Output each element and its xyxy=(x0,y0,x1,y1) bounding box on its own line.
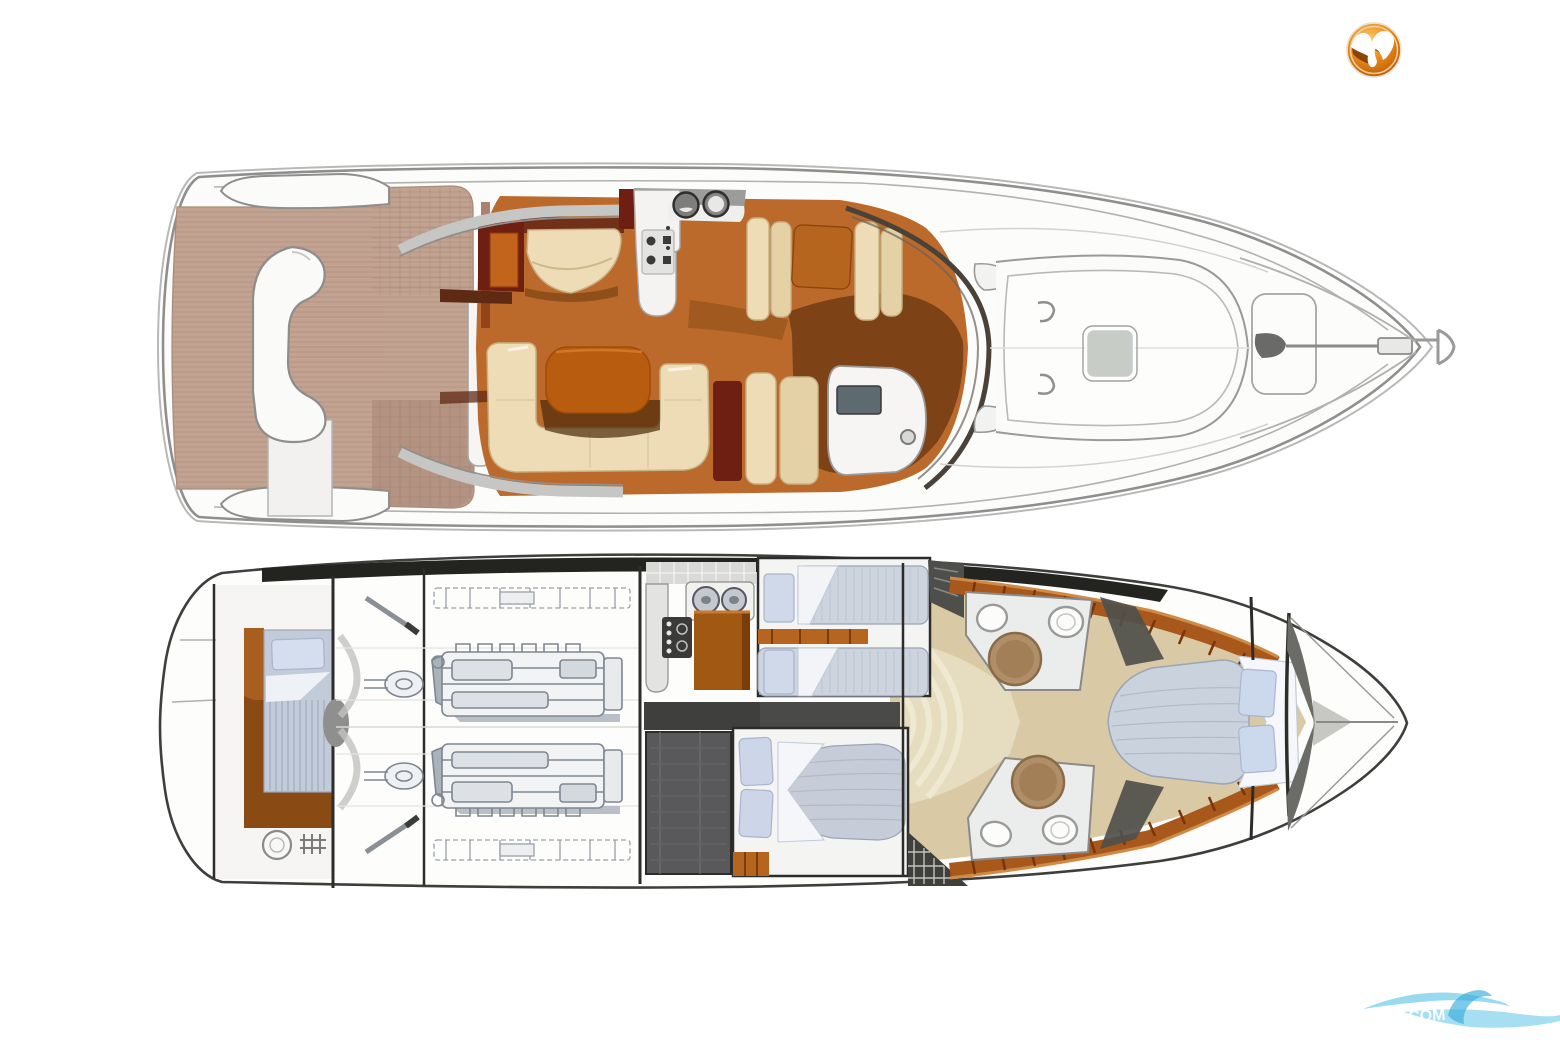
svg-text:.COM: .COM xyxy=(1403,1007,1446,1026)
